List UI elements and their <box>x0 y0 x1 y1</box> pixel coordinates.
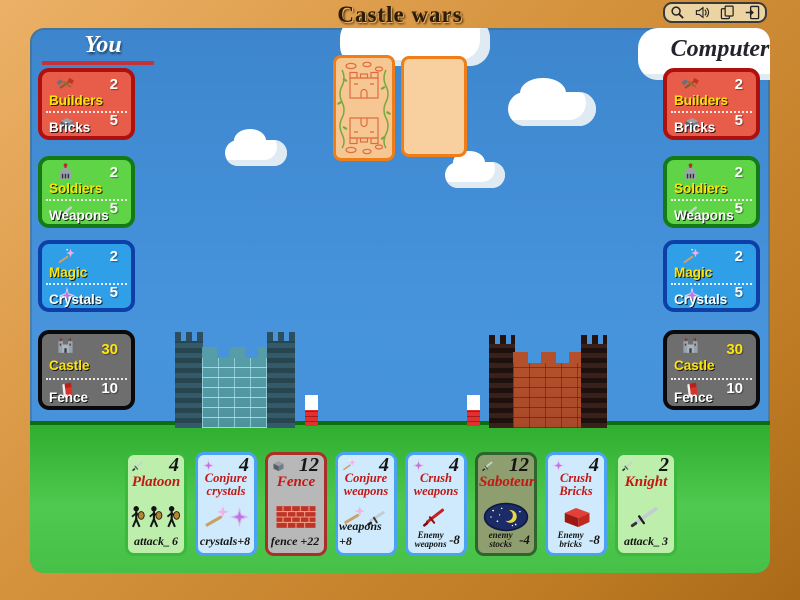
computer-fence-label: Fence <box>674 390 713 405</box>
soldiers-icon <box>54 163 77 183</box>
card-art-red-sword <box>408 501 464 533</box>
card-art-night-moon <box>478 501 534 533</box>
player-hand: 4 Platoon attack_6 4 Conjure crystals cr… <box>125 452 677 556</box>
you-builders-value: 2 <box>110 76 118 93</box>
fence-post-top <box>467 395 480 410</box>
computer-castle-tower-right <box>581 335 607 428</box>
you-bricks-value: 5 <box>110 112 118 129</box>
computer-soldiers-label: Soldiers <box>674 181 727 196</box>
you-castle-wall <box>202 347 268 428</box>
you-fence-label: Fence <box>49 390 88 405</box>
card-effect: Enemy bricks-8 <box>549 531 603 549</box>
you-castle-label: Castle <box>49 358 90 373</box>
computer-soldiers-value: 2 <box>735 164 743 181</box>
computer-builders-panel: 2 Builders 5 Bricks <box>663 68 760 140</box>
you-weapons-label: Weapons <box>49 208 109 223</box>
card-fence[interactable]: 12 Fence fence +22 <box>265 452 327 556</box>
computer-weapons-value: 5 <box>735 200 743 217</box>
sword-icon <box>621 458 636 473</box>
cloud <box>445 162 505 188</box>
you-castle-value: 30 <box>101 341 118 358</box>
you-bricks-label: Bricks <box>49 120 90 135</box>
computer-weapons-label: Weapons <box>674 208 734 223</box>
card-effect: Enemy weapons-8 <box>409 531 463 549</box>
you-weapons-value: 5 <box>110 200 118 217</box>
computer-castle-value: 30 <box>726 341 743 358</box>
zoom-icon[interactable] <box>670 5 685 20</box>
card-effect: crystals+8 <box>199 534 253 549</box>
card-art-brick-wall <box>268 501 324 533</box>
magic-icon <box>54 247 77 267</box>
card-effect: attack_6 <box>129 534 183 549</box>
draw-deck-card[interactable] <box>333 55 395 161</box>
computer-fence-post <box>467 395 480 426</box>
computer-magic-value: 2 <box>735 248 743 265</box>
computer-fence-value: 10 <box>726 380 743 397</box>
fence-post-top <box>305 395 318 410</box>
card-platoon[interactable]: 4 Platoon attack_6 <box>125 452 187 556</box>
you-castle-tower-left <box>175 332 203 428</box>
card-effect: fence +22 <box>269 534 323 549</box>
you-builders-panel: 2 Builders 5 Bricks <box>38 68 135 140</box>
window-toolbar <box>663 2 767 23</box>
player-computer-label: Computer <box>650 36 770 63</box>
magic-icon <box>679 247 702 267</box>
you-soldiers-value: 2 <box>110 164 118 181</box>
sword-icon <box>131 458 146 473</box>
player-you-label: You <box>48 32 158 59</box>
you-soldiers-label: Soldiers <box>49 181 102 196</box>
you-fence-post <box>305 395 318 426</box>
playfield: You Computer 2 Builders 5 Bricks 2 Soldi… <box>30 28 770 573</box>
cloud <box>508 92 596 126</box>
you-castle-tower-right <box>267 332 295 428</box>
you-magic-label: Magic <box>49 265 87 280</box>
card-title: Fence <box>269 475 323 491</box>
card-effect: weapons +8 <box>339 519 393 549</box>
card-crush-weapons[interactable]: 4 Crush weapons Enemy weapons-8 <box>405 452 467 556</box>
fence-post-bottom <box>467 410 480 426</box>
soldiers-icon <box>679 163 702 183</box>
cards-icon[interactable] <box>720 5 735 20</box>
you-magic-value: 2 <box>110 248 118 265</box>
computer-castle-panel: 30 Castle 10 Fence <box>663 330 760 410</box>
card-art-red-brick <box>548 501 604 533</box>
card-conjure-crystals[interactable]: 4 Conjure crystals crystals+8 <box>195 452 257 556</box>
computer-crystals-label: Crystals <box>674 292 727 307</box>
cloud <box>225 140 287 166</box>
card-effect: attack_3 <box>619 534 673 549</box>
play-slot-card <box>401 56 467 157</box>
you-castle-panel: 30 Castle 10 Fence <box>38 330 135 410</box>
you-soldiers-panel: 2 Soldiers 5 Weapons <box>38 156 135 228</box>
card-knight[interactable]: 2 Knight attack_3 <box>615 452 677 556</box>
exit-icon[interactable] <box>745 5 760 20</box>
computer-castle-tower-left <box>489 335 515 428</box>
card-art-big-sword <box>618 501 674 533</box>
card-conjure-weapons[interactable]: 4 Conjure weapons weapons +8 <box>335 452 397 556</box>
card-title: Saboteur <box>479 475 533 491</box>
computer-soldiers-panel: 2 Soldiers 5 Weapons <box>663 156 760 228</box>
fence-post-bottom <box>305 410 318 426</box>
you-underline <box>42 61 154 65</box>
card-crush-bricks[interactable]: 4 Crush Bricks Enemy bricks-8 <box>545 452 607 556</box>
computer-bricks-label: Bricks <box>674 120 715 135</box>
builders-icon <box>54 75 77 95</box>
card-saboteur[interactable]: 12 Saboteur enemy stocks-4 <box>475 452 537 556</box>
builders-icon <box>679 75 702 95</box>
card-title: Conjure weapons <box>339 472 393 498</box>
castle-icon <box>54 337 77 357</box>
you-magic-panel: 2 Magic 5 Crystals <box>38 240 135 312</box>
card-title: Crush weapons <box>409 472 463 498</box>
card-title: Platoon <box>129 475 183 491</box>
castle-icon <box>679 337 702 357</box>
computer-bricks-value: 5 <box>735 112 743 129</box>
card-title: Conjure crystals <box>199 472 253 498</box>
computer-builders-label: Builders <box>674 93 728 108</box>
you-crystals-label: Crystals <box>49 292 102 307</box>
computer-castle-wall <box>513 352 583 428</box>
computer-builders-value: 2 <box>735 76 743 93</box>
computer-crystals-value: 5 <box>735 284 743 301</box>
sword-icon <box>481 458 496 473</box>
card-effect: enemy stocks-4 <box>479 531 533 549</box>
you-fence-value: 10 <box>101 380 118 397</box>
brick-icon <box>271 458 286 473</box>
computer-magic-panel: 2 Magic 5 Crystals <box>663 240 760 312</box>
card-art-soldiers <box>128 501 184 533</box>
sound-icon[interactable] <box>695 5 710 20</box>
card-title: Knight <box>619 475 673 491</box>
card-art-wand-crystal <box>198 501 254 533</box>
computer-castle-label: Castle <box>674 358 715 373</box>
you-builders-label: Builders <box>49 93 103 108</box>
you-crystals-value: 5 <box>110 284 118 301</box>
card-back-art <box>336 58 392 158</box>
computer-magic-label: Magic <box>674 265 712 280</box>
card-title: Crush Bricks <box>549 472 603 498</box>
